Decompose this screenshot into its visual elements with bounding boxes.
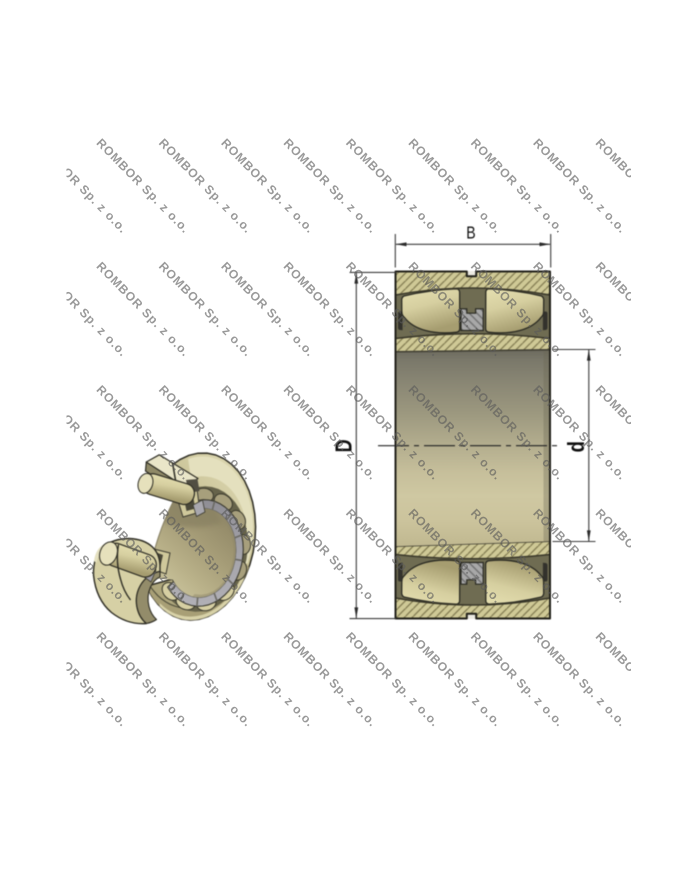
svg-text:B: B <box>466 224 475 243</box>
